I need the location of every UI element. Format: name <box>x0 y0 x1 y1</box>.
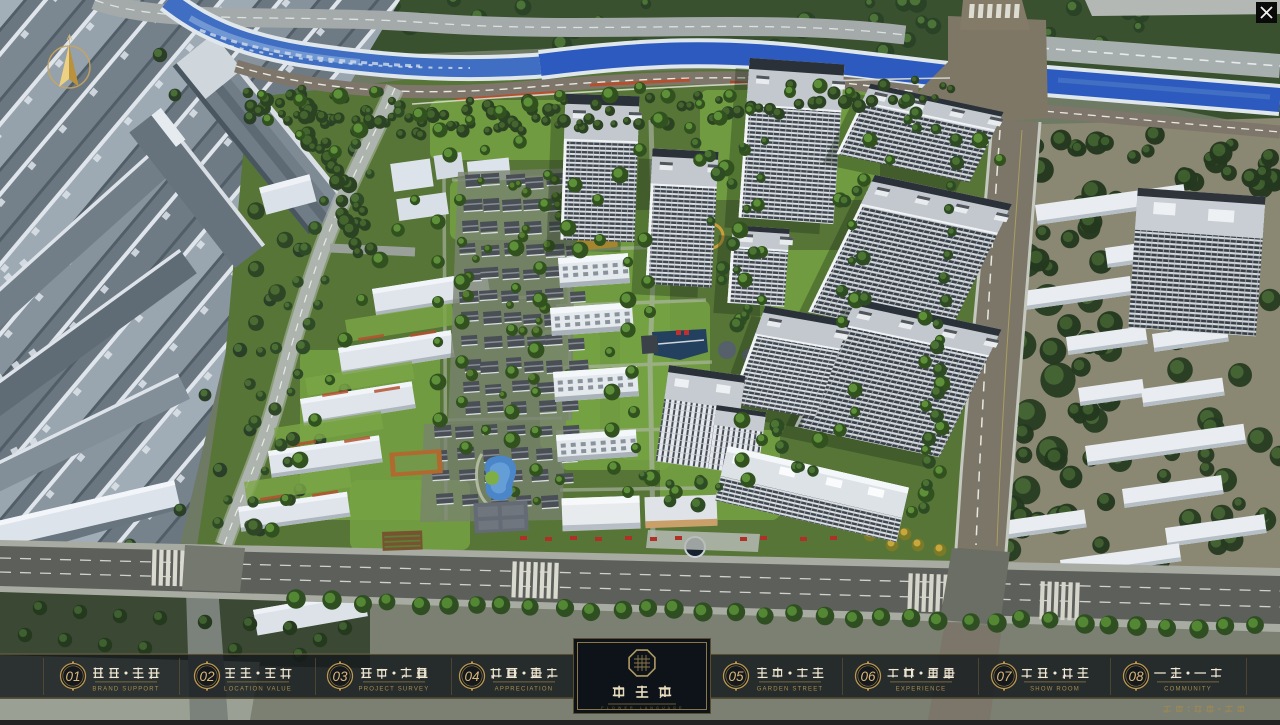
svg-text:F L O W E R L A N G U A G E: F L O W E R L A N G U A G E <box>601 706 682 710</box>
svg-text:08: 08 <box>1128 669 1144 684</box>
svg-text:02: 02 <box>199 669 215 684</box>
svg-text:01: 01 <box>65 669 80 684</box>
svg-text:APPRECIATION: APPRECIATION <box>495 687 554 693</box>
svg-text:04: 04 <box>464 669 479 684</box>
svg-text:05: 05 <box>728 669 744 684</box>
svg-text:GARDEN STREET: GARDEN STREET <box>757 687 824 693</box>
svg-text:EXPERIENCE: EXPERIENCE <box>896 687 947 693</box>
svg-text:COMMUNITY: COMMUNITY <box>1164 687 1212 693</box>
svg-text:SHOW ROOM: SHOW ROOM <box>1030 687 1080 693</box>
svg-text:06: 06 <box>860 669 876 684</box>
svg-text:07: 07 <box>996 669 1012 684</box>
svg-text:03: 03 <box>332 669 348 684</box>
svg-text:PROJECT SURVEY: PROJECT SURVEY <box>359 687 430 693</box>
svg-text:LOCATION VALUE: LOCATION VALUE <box>224 687 292 693</box>
svg-text:BRAND SUPPORT: BRAND SUPPORT <box>92 687 159 693</box>
